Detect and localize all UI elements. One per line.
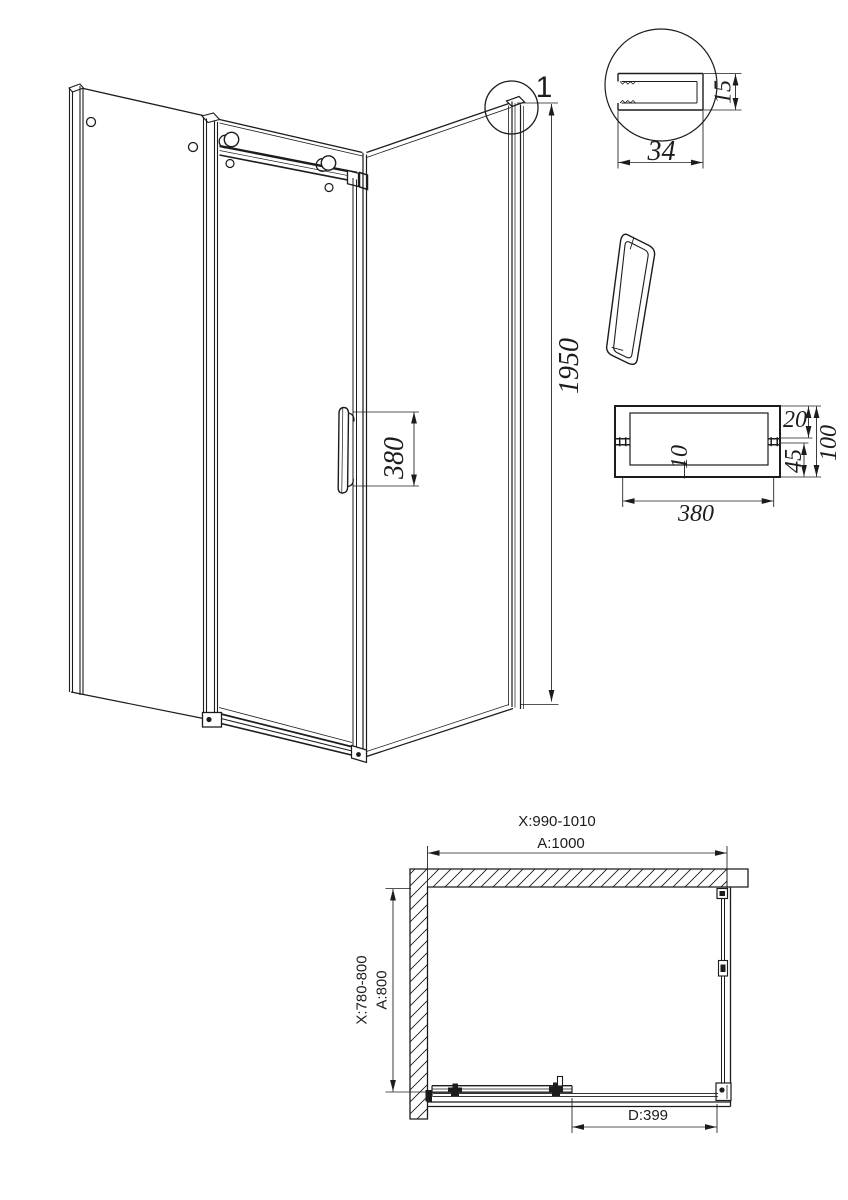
profile-width-dimension-label: 34 xyxy=(647,136,676,167)
post-foot-bracket xyxy=(203,713,222,728)
depth-nominal-label: A:800 xyxy=(374,970,391,1009)
door-opening-label: D:399 xyxy=(628,1107,668,1124)
technical-drawing-sheet: 380 1 xyxy=(0,0,848,1200)
overall-height-dimension-label: 100 xyxy=(816,425,842,461)
rail-mounting-hole xyxy=(87,118,96,127)
drawing-canvas: 380 1 xyxy=(0,0,848,1200)
lower-bar-dimension-label: 45 xyxy=(781,449,807,473)
depth-range-label: X:780-800 xyxy=(354,955,371,1024)
handle-height-dimension-label: 380 xyxy=(379,437,410,480)
wall-top-hatch xyxy=(410,869,727,887)
door-stopper-pin xyxy=(558,1077,563,1087)
height-dimension-label: 1950 xyxy=(554,338,585,394)
width-nominal-label: A:1000 xyxy=(537,835,585,852)
width-range-label: X:990-1010 xyxy=(518,813,596,830)
top-bar-dimension-label: 20 xyxy=(783,407,807,433)
wall-left-hatch xyxy=(410,887,428,1119)
guide-wheel xyxy=(325,184,333,192)
guide-wheel xyxy=(226,160,234,168)
dimension-top-bar: 20 xyxy=(783,407,809,438)
rail-mounting-hole xyxy=(189,143,198,152)
profile-depth-dimension-label: 15 xyxy=(711,80,737,104)
handle-length-dimension-label: 380 xyxy=(677,501,714,527)
bar-thickness-dimension-label: 10 xyxy=(667,445,693,469)
handle-outer-outline xyxy=(615,406,780,477)
detail-callout-label: 1 xyxy=(536,71,553,104)
